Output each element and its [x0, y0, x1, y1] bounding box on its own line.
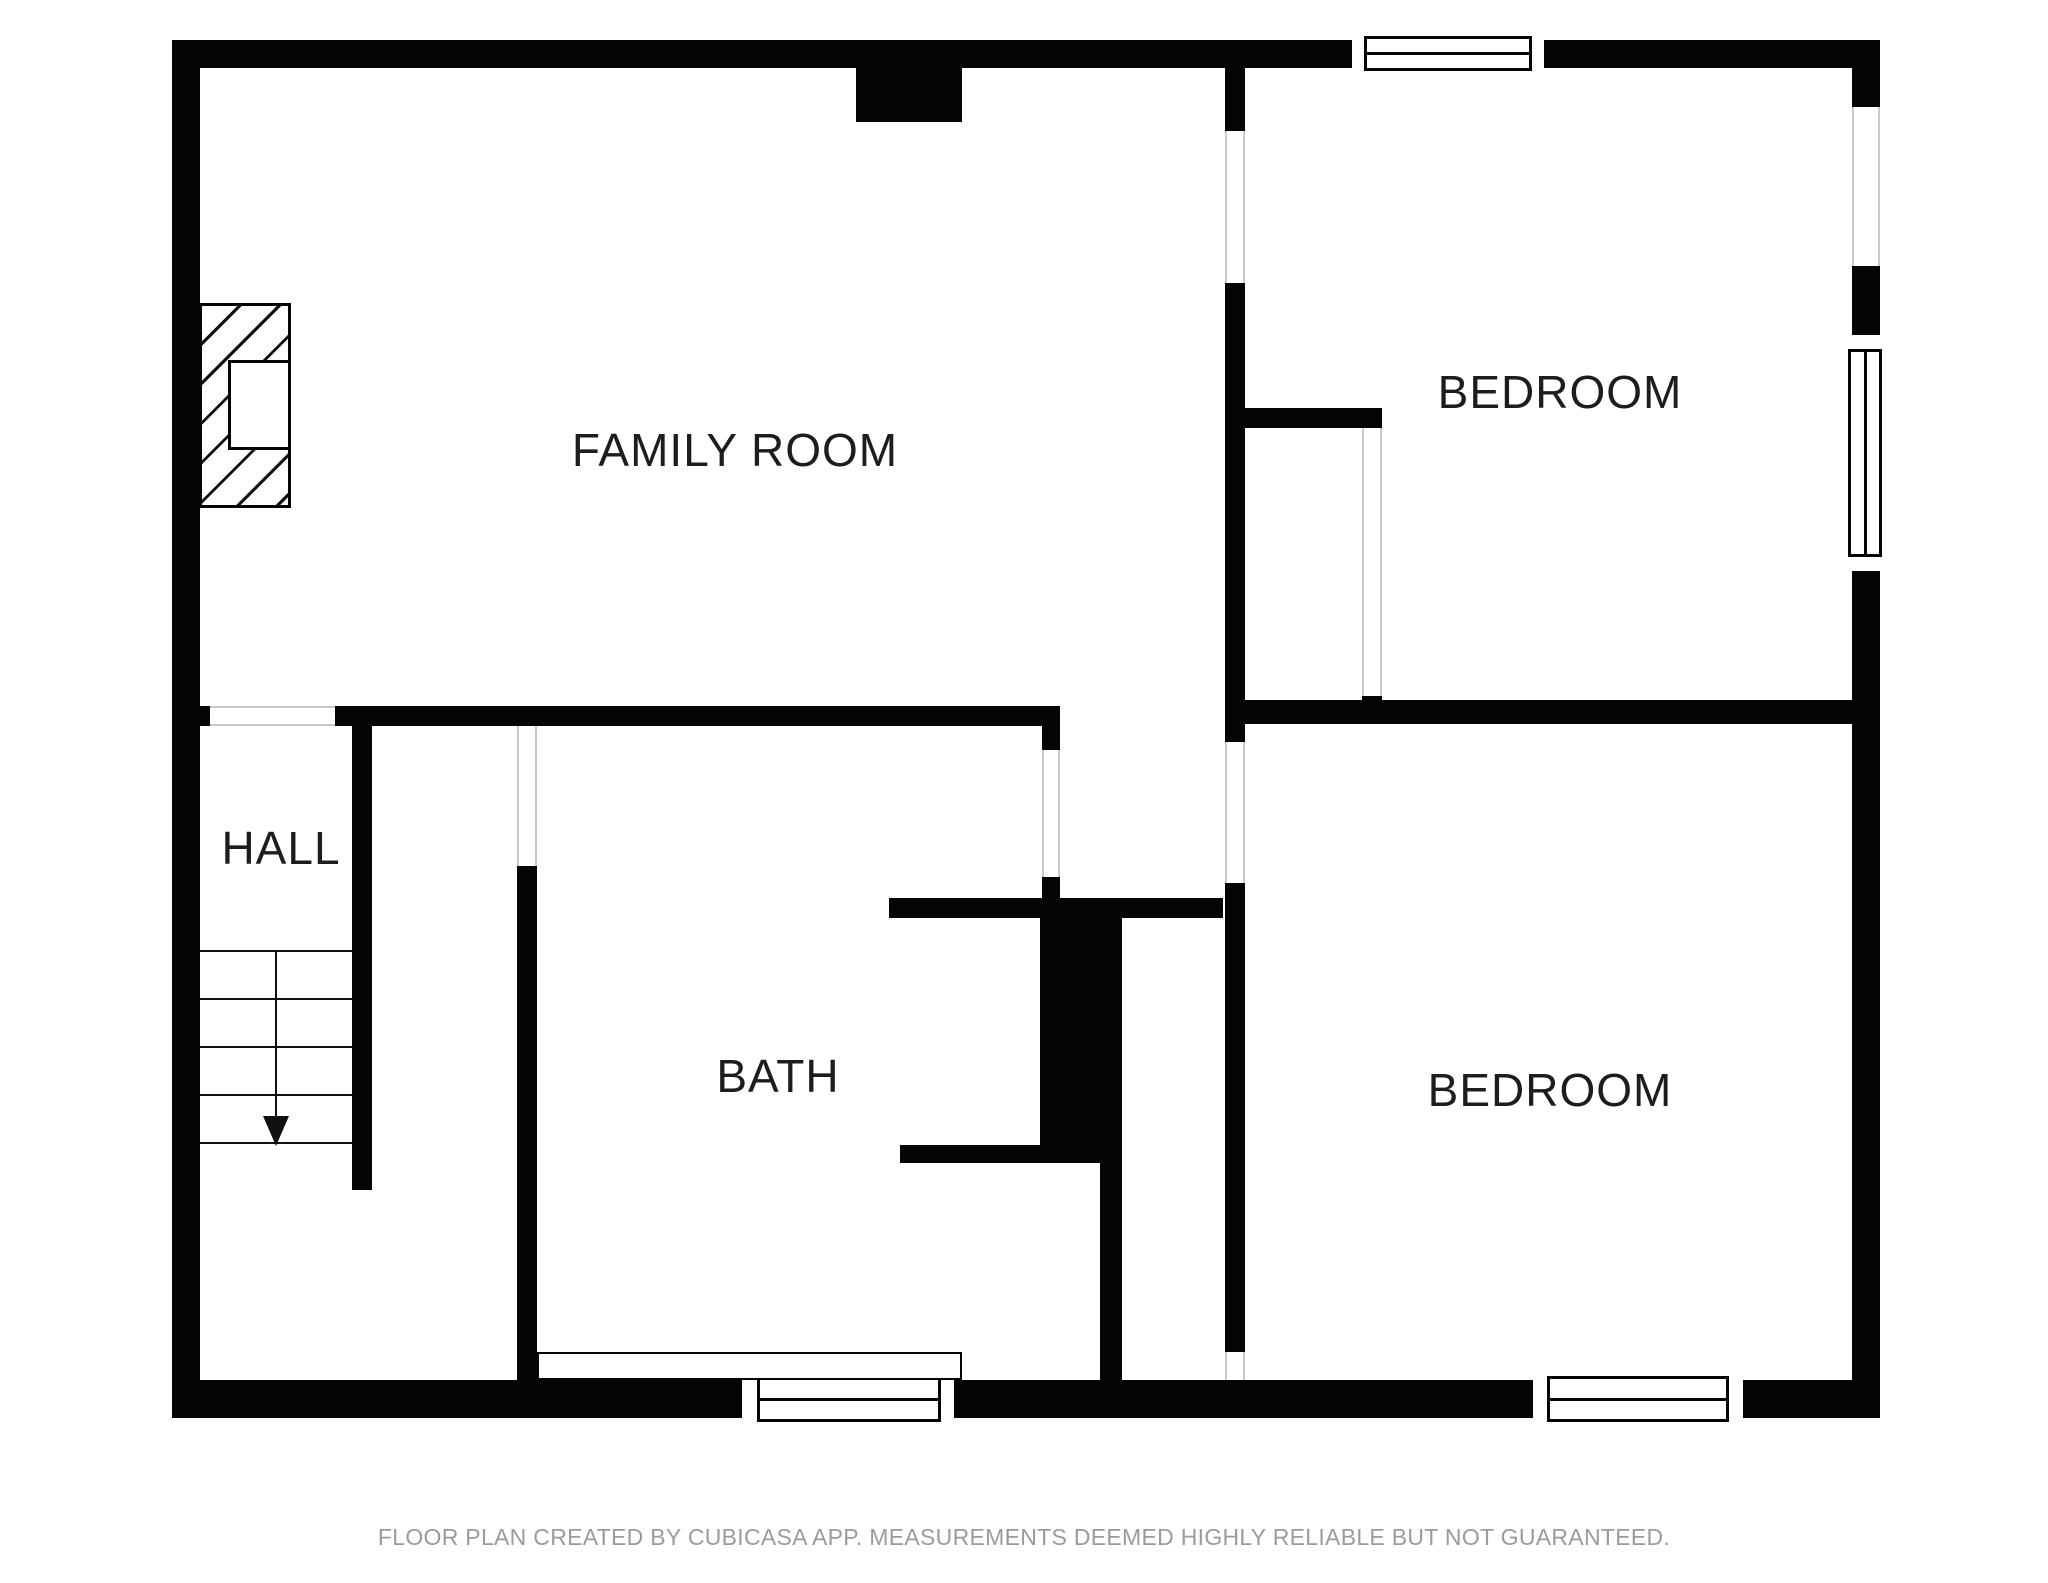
- bath-west-wall: [517, 866, 537, 1380]
- fireplace-firebox: [228, 360, 291, 450]
- bath-east-jamb-cap: [1042, 877, 1060, 898]
- stair-run-centerline: [275, 950, 277, 1118]
- bath-east-door-opening: [1042, 750, 1060, 877]
- window-bedroom-frame: [1547, 1376, 1729, 1422]
- right-wall-opening: [1852, 107, 1880, 266]
- room-label-bedroom-bottom: BEDROOM: [1428, 1063, 1673, 1117]
- room-label-hall: HALL: [221, 821, 340, 875]
- closet-north-wall: [1245, 408, 1382, 428]
- window-bedroom-midline: [1549, 1398, 1727, 1401]
- hall-door-opening: [210, 706, 335, 726]
- window-bath-frame: [757, 1376, 941, 1422]
- bedroom-bottom-door-opening: [1225, 742, 1245, 883]
- window-top-frame: [1364, 36, 1532, 71]
- bath-east-jamb-stub: [1042, 726, 1060, 750]
- window-top-midline: [1366, 52, 1530, 55]
- bedroom-top-door-opening: [1225, 131, 1245, 283]
- stairs-down-arrow-icon: [263, 1116, 289, 1146]
- window-right-frame: [1848, 349, 1882, 557]
- closet-door-opening: [1362, 428, 1382, 696]
- chimney-block: [856, 40, 962, 122]
- bath-vanity-counter: [537, 1352, 962, 1380]
- footer-disclaimer: FLOOR PLAN CREATED BY CUBICASA APP. MEAS…: [0, 1524, 2048, 1551]
- center-wall-lower: [1225, 883, 1245, 1352]
- staircase: [200, 950, 352, 1150]
- window-right-midline: [1864, 351, 1867, 555]
- chase-south-stub-wall: [1100, 1163, 1122, 1380]
- bath-west-door-opening: [517, 726, 537, 866]
- floor-plan-canvas: FAMILY ROOM BEDROOM HALL BATH BEDROOM FL…: [0, 0, 2048, 1583]
- room-label-bedroom-top: BEDROOM: [1438, 365, 1683, 419]
- center-wall-bottom-notch: [1225, 1352, 1245, 1380]
- hall-east-wall: [352, 706, 372, 1190]
- exterior-wall-left: [172, 40, 200, 1418]
- exterior-wall-top: [172, 40, 1880, 68]
- bedrooms-divider-wall: [1225, 700, 1852, 724]
- bath-recess-south-wall: [900, 1145, 1040, 1163]
- window-bath-midline: [759, 1398, 939, 1401]
- plumbing-column: [1040, 898, 1122, 1163]
- closet-door-cap: [1362, 696, 1382, 724]
- room-label-family-room: FAMILY ROOM: [572, 423, 898, 477]
- room-label-bath: BATH: [716, 1049, 839, 1103]
- center-wall-upper-stub: [1225, 68, 1245, 131]
- center-wall-main: [1225, 283, 1245, 742]
